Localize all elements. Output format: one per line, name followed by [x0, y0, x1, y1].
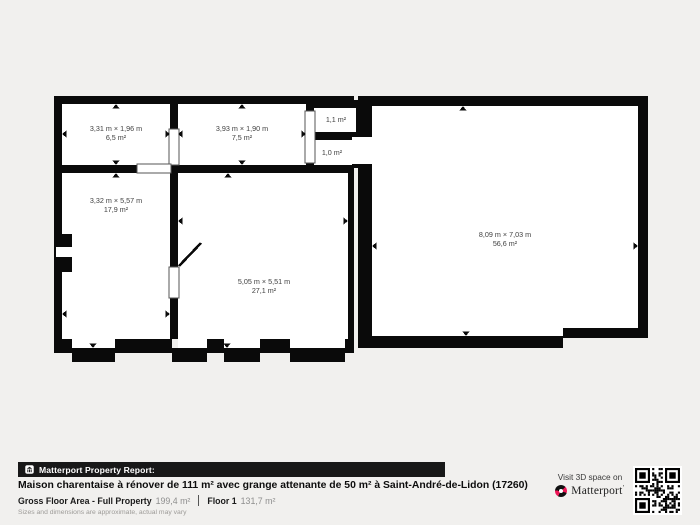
floor-value: 131,7 m²	[241, 496, 276, 506]
room-top-mid-area: 7,5 m²	[232, 133, 253, 142]
disclaimer-text: Sizes and dimensions are approximate, ac…	[18, 509, 187, 516]
room-main	[178, 173, 348, 348]
room-main-dims: 5,05 m × 5,51 m	[238, 277, 290, 286]
visit-3d-block: Visit 3D space on Matterport’	[550, 472, 630, 497]
floor-plan: 3,31 m × 1,96 m 6,5 m² 3,93 m × 1,90 m 7…	[0, 0, 700, 525]
gross-floor-area-label: Gross Floor Area - Full Property	[18, 496, 152, 506]
gross-floor-area-value: 199,4 m²	[156, 496, 191, 506]
area-summary: Gross Floor Area - Full Property 199,4 m…	[18, 495, 275, 506]
property-title: Maison charentaise à rénover de 111 m² a…	[18, 480, 528, 491]
trademark-mark: ’	[622, 485, 624, 491]
matterport-brand-row: Matterport’	[555, 485, 624, 497]
matterport-wordmark: Matterport’	[571, 485, 624, 497]
door-closets	[305, 111, 315, 163]
closet-lower-area: 1,0 m²	[322, 148, 343, 157]
barn-step-trim	[563, 338, 648, 348]
room-top-left-area: 6,5 m²	[106, 133, 127, 142]
floor-plan-rooms	[56, 104, 638, 348]
door-left-main	[169, 267, 179, 298]
visit-3d-text: Visit 3D space on	[558, 472, 622, 482]
room-barn-dims: 8,09 m × 7,03 m	[479, 230, 531, 239]
matterport-report-icon	[25, 465, 34, 474]
room-main-area: 27,1 m²	[252, 286, 277, 295]
matterport-logo-icon	[555, 485, 567, 497]
qr-code	[633, 466, 682, 515]
room-top-left-dims: 3,31 m × 1,96 m	[90, 124, 142, 133]
report-bar-label: Matterport Property Report:	[39, 465, 155, 475]
qr-code-pattern	[635, 468, 680, 513]
door-top-rooms	[169, 129, 179, 165]
passage-opening	[352, 137, 372, 164]
room-barn-area: 56,6 m²	[493, 239, 518, 248]
closet-upper-area: 1,1 m²	[326, 115, 347, 124]
door-top-left-room	[137, 164, 171, 173]
area-divider	[198, 495, 199, 506]
matterport-property-report: 3,31 m × 1,96 m 6,5 m² 3,93 m × 1,90 m 7…	[0, 0, 700, 525]
room-left-dims: 3,32 m × 5,57 m	[90, 196, 142, 205]
floor-label: Floor 1	[207, 496, 236, 506]
fireplace-recess	[56, 247, 72, 257]
room-barn	[372, 106, 638, 336]
room-left-area: 17,9 m²	[104, 205, 129, 214]
report-header-bar: Matterport Property Report:	[18, 462, 445, 477]
room-top-mid-dims: 3,93 m × 1,90 m	[216, 124, 268, 133]
